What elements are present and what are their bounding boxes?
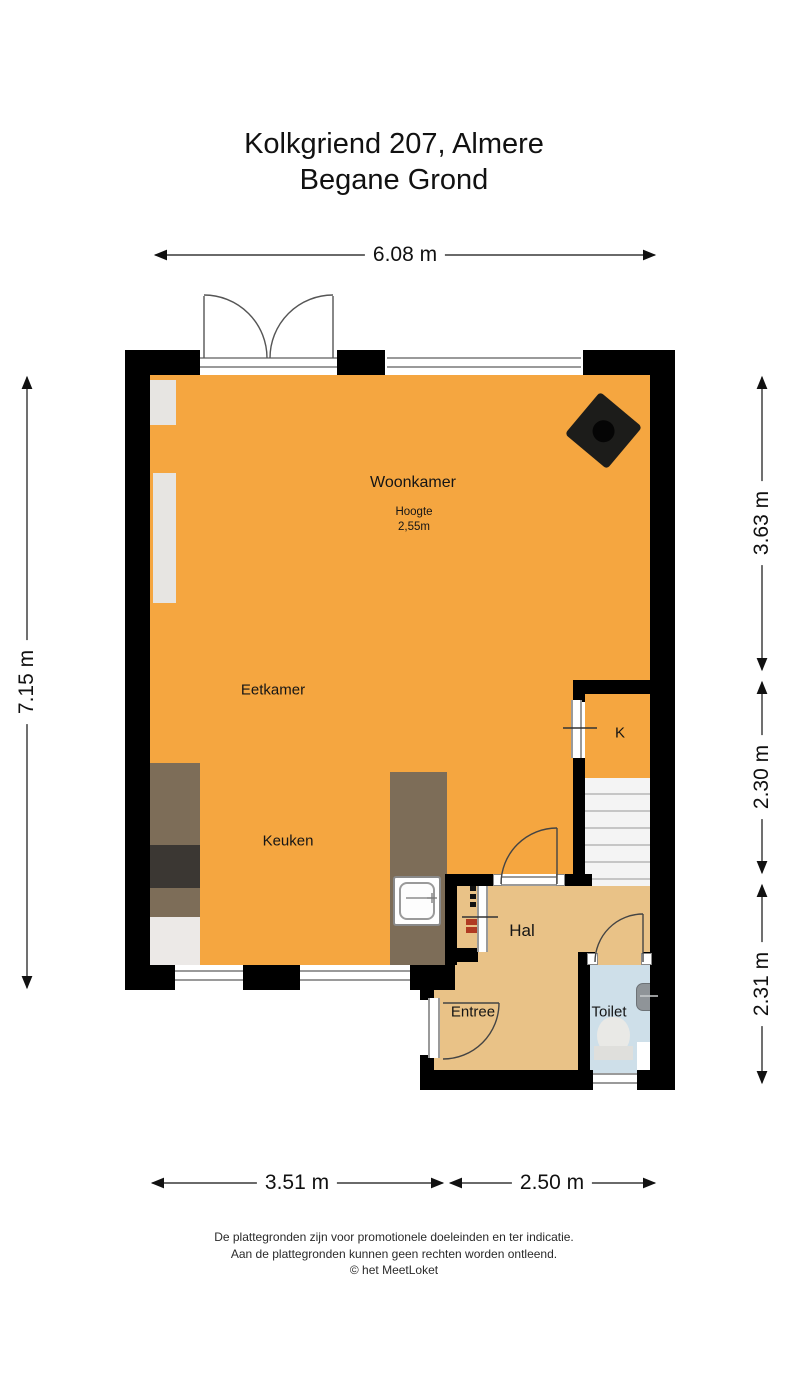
- label-hoogte-value: 2,55m: [398, 521, 430, 533]
- window-toilet: [593, 1073, 637, 1084]
- label-woonkamer: Woonkamer: [370, 474, 456, 492]
- wall-kast-left-lower: [573, 758, 585, 880]
- dim-height-total: 7.15 m: [15, 640, 39, 724]
- wall-hal-top-a: [445, 874, 500, 886]
- meterkast-door-panel: [477, 886, 488, 952]
- page-subtitle: Begane Grond: [0, 164, 788, 197]
- wall-toilet-left: [578, 952, 590, 1090]
- wall-meterkast-bottom: [445, 948, 478, 962]
- label-kast: K: [615, 725, 625, 742]
- wall-bottom-b: [243, 965, 300, 990]
- window-bottom-left: [175, 970, 243, 981]
- toilet-door-jamb-left: [587, 953, 598, 965]
- dim-bottom-1: 3.51 m: [257, 1171, 337, 1195]
- room-hal-entree-floor: [445, 886, 578, 1070]
- label-eetkamer: Eetkamer: [241, 682, 305, 699]
- wall-bottom-toilet: [637, 1070, 675, 1090]
- wall-bottom-entree: [420, 1070, 593, 1090]
- window-bottom-middle: [300, 970, 410, 981]
- footer-line-2: Aan de plattegronden kunnen geen rechten…: [0, 1246, 788, 1263]
- label-hal: Hal: [509, 921, 535, 941]
- dim-bottom-2: 2.50 m: [512, 1171, 592, 1195]
- dim-right-1: 3.63 m: [750, 481, 774, 565]
- hal-door-jamb-right: [556, 874, 565, 886]
- french-doors-icon: [204, 295, 333, 358]
- stove-burner-icon: [588, 415, 619, 446]
- label-toilet: Toilet: [591, 1004, 626, 1021]
- threshold-hal-door: [500, 876, 557, 886]
- hal-door-jamb-left: [493, 874, 502, 886]
- front-door-glazing: [428, 998, 440, 1058]
- footer-line-1: De plattegronden zijn voor promotionele …: [0, 1229, 788, 1246]
- kitchen-appliance-block: [150, 845, 200, 888]
- wall-bottom-c: [410, 965, 455, 990]
- window-top: [387, 357, 581, 368]
- label-keuken: Keuken: [263, 833, 314, 850]
- wall-left: [125, 350, 150, 990]
- kitchen-counter-left-upper: [150, 763, 200, 845]
- french-door-sill: [200, 357, 337, 368]
- toilet-cistern: [594, 1046, 633, 1060]
- label-entree: Entree: [451, 1004, 495, 1021]
- dim-right-2: 2.30 m: [750, 735, 774, 819]
- kitchen-recess: [150, 915, 200, 965]
- wall-right: [650, 350, 675, 1090]
- wall-top-middle: [337, 350, 385, 375]
- kitchen-counter-left-lower: [150, 888, 200, 917]
- sink-icon: [393, 876, 441, 926]
- dim-right-3: 2.31 m: [750, 942, 774, 1026]
- footer-copyright: © het MeetLoket: [0, 1262, 788, 1279]
- room-keuken-floor-right: [445, 694, 573, 874]
- wall-niche-top: [150, 380, 176, 425]
- label-hoogte: Hoogte: [395, 506, 432, 518]
- kitchen-counter-right: [390, 772, 447, 965]
- wall-bottom-a: [125, 965, 175, 990]
- page-title: Kolkgriend 207, Almere: [0, 128, 788, 161]
- wall-niche-left: [153, 473, 176, 603]
- footer-disclaimer: De plattegronden zijn voor promotionele …: [0, 1229, 788, 1279]
- sink-basin: [399, 882, 435, 920]
- dim-width-total: 6.08 m: [365, 243, 445, 267]
- floorplan-page: Kolkgriend 207, Almere Begane Grond: [0, 0, 788, 1400]
- toilet-door-jamb-right: [641, 953, 652, 965]
- wall-entree-left-lower: [420, 1055, 434, 1075]
- wall-kast-top: [573, 680, 653, 694]
- stairs: [585, 778, 650, 886]
- kast-door-panel: [571, 700, 582, 758]
